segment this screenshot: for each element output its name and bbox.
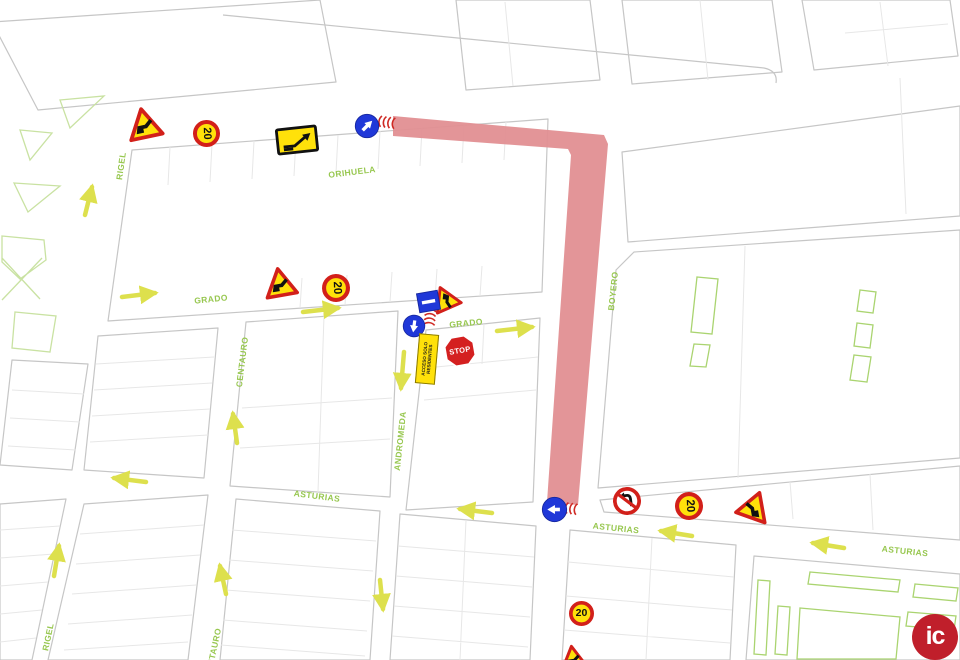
mandatory-direction-sign (354, 113, 380, 139)
roadworks-traffic-plan-map: RIGEL ORIHUELA GRADO GRADO CENTAURO ANDR… (0, 0, 960, 660)
mandatory-direction-sign (541, 496, 568, 523)
speed-limit-value: 20 (330, 281, 342, 294)
no-left-turn-sign (611, 485, 643, 517)
speed-limit-value: 20 (683, 499, 695, 512)
speed-limit-20-sign: 20 (569, 601, 594, 626)
speed-limit-value: 20 (576, 608, 588, 619)
roadworks-warning-sign (259, 263, 300, 301)
speed-limit-20-sign: 20 (193, 120, 221, 148)
blue-panel-sign (415, 289, 441, 314)
street-network (0, 0, 960, 660)
speed-limit-value: 20 (201, 127, 212, 140)
roadworks-warning-sign (730, 489, 768, 530)
speed-limit-20-sign: 20 (322, 274, 351, 303)
publisher-logo: ic (912, 614, 958, 660)
detour-panel-sign (274, 124, 321, 156)
roadworks-warning-sign (556, 642, 589, 660)
park-outlines (2, 96, 104, 352)
stop-sign-label: STOP (449, 345, 471, 356)
city-blocks (0, 0, 960, 660)
stop-sign: STOP (441, 332, 478, 369)
speed-limit-20-sign: 20 (675, 492, 704, 521)
publisher-logo-text: ic (926, 624, 945, 649)
